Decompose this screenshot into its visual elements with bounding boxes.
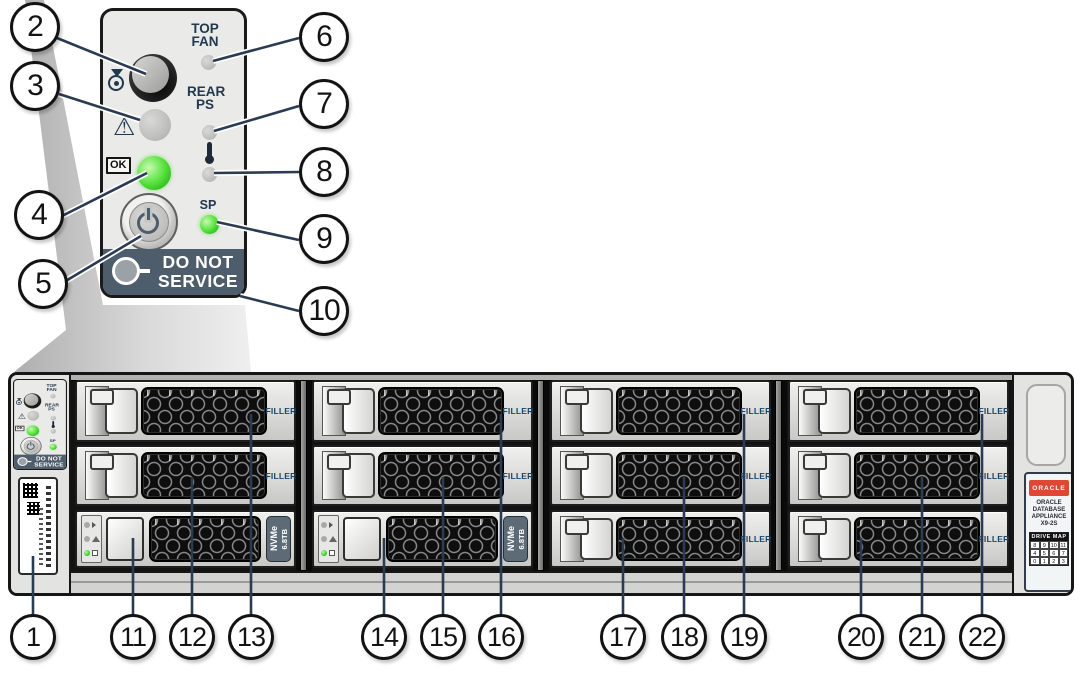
do-not-service-label: DO NOTSERVICE [31,456,67,468]
callout-15: 15 [420,614,466,660]
filler-latch [342,388,375,434]
callout-9: 9 [299,214,349,264]
filler-grille [616,387,742,435]
callout-20: 20 [838,614,884,660]
power-icon [27,442,36,450]
ready-to-remove-icon [92,522,98,528]
serial-number-label [18,477,58,575]
callout-6: 6 [299,12,349,62]
callout-3: 3 [10,61,60,111]
filler-grille [854,452,980,499]
callout-14: 14 [361,614,407,660]
ok-box-icon: OK [15,426,24,431]
locate-button [129,54,177,102]
filler-label: FILLER [268,382,294,440]
filler-latch [105,453,138,498]
filler-label: FILLER [743,382,769,440]
top-fan-led [201,55,216,70]
callout-4: 4 [14,190,64,240]
rear-ps-led [202,125,217,140]
callout-12: 12 [169,614,215,660]
filler-label: FILLER [268,447,294,504]
callout-22: 22 [959,614,1005,660]
rear-ps-label: REARPS [187,85,223,111]
callout-17: 17 [600,614,646,660]
callout-1: 1 [10,614,56,660]
control-panel: ⚠ OK TOPFAN REARPS SP [100,8,247,298]
filler-slot: FILLER [75,380,296,442]
callout-21: 21 [899,614,945,660]
top-fan-label: TOPFAN [45,383,58,391]
ready-to-remove-icon [329,522,335,528]
sp-led [50,444,57,450]
filler-label: FILLER [743,447,769,504]
nvme-capacity-tab: NVMe 6.8TB [503,516,528,562]
filler-grille [141,387,267,435]
drive-fault-icon [329,536,337,542]
filler-latch [580,453,613,498]
top-fan-label: TOPFAN [187,22,223,48]
qr-code-icon [23,483,38,498]
fault-warning-icon: ⚠ [18,412,26,420]
do-not-service-band: DO NOTSERVICE [103,249,244,295]
serial-text-lines [39,505,43,565]
filler-slot: FILLER [550,445,771,506]
filler-latch [580,388,613,434]
callout-7: 7 [299,79,349,129]
fault-led [27,411,39,421]
oracle-product-label: ORACLE ORACLE DATABASE APPLIANCE X9-2S D… [1024,472,1074,592]
product-name: ORACLE DATABASE APPLIANCE X9-2S [1029,500,1069,528]
filler-grille [141,452,267,499]
bay-divider [771,380,787,571]
do-not-service-band: DO NOTSERVICE [14,455,66,469]
temperature-icon [51,421,55,429]
do-not-service-led [17,457,27,466]
filler-latch [580,518,613,560]
filler-slot: FILLER [550,380,771,442]
callout-18: 18 [661,614,707,660]
drive-ok-icon [329,550,335,556]
filler-latch [818,518,851,560]
nvme-capacity-tab: NVMe 6.8TB [266,516,291,562]
filler-latch [105,388,138,434]
nvme-drive-slot: NVMe 6.8TB [312,510,533,568]
drive-ok-icon [92,550,98,556]
filler-latch [818,453,851,498]
oda-front-panel-diagram: ⚠ OK TOPFAN REARPS SP [0,0,1085,675]
bay-divider [533,380,549,571]
filler-slot: FILLER [312,380,533,442]
right-ear-handle-recess [1026,384,1066,466]
filler-slot: FILLER [75,445,296,506]
drive-release-button [343,517,381,561]
callout-5: 5 [18,259,68,309]
sp-led [200,215,219,234]
rear-ps-led [50,416,56,421]
serial-text-lines [46,485,51,567]
temperature-led [202,167,217,182]
bay-divider [296,380,312,571]
callout-16: 16 [478,614,524,660]
drive-fault-icon [92,536,100,542]
chassis-left-ear: ⚠ OK TOPFAN REARPS SP [11,375,71,593]
sp-label: SP [47,439,58,443]
temperature-icon [203,142,215,166]
filler-slot: FILLER [788,380,1009,442]
filler-label: FILLER [981,382,1007,440]
callout-10: 10 [299,286,349,336]
do-not-service-led [112,257,140,285]
temperature-led [50,429,56,434]
drive-led-strip [318,515,339,563]
filler-grille [616,517,742,561]
filler-label: FILLER [981,512,1007,566]
filler-label: FILLER [743,512,769,566]
ok-box-icon: OK [106,157,131,174]
filler-grille [378,387,504,435]
locate-button [24,393,42,408]
do-not-service-label: DO NOTSERVICE [149,253,247,291]
filler-slot: FILLER [788,510,1009,568]
filler-slot: FILLER [550,510,771,568]
server-chassis-front: ⚠ OK TOPFAN REARPS SP [8,372,1074,596]
filler-label: FILLER [981,447,1007,504]
top-fan-led [50,394,56,399]
filler-grille [854,517,980,561]
drive-map-table: DRIVE MAP 891011 4567 0123 [1029,532,1069,566]
ok-led [137,156,171,190]
drive-grille [386,516,498,562]
callout-2: 2 [10,2,60,52]
filler-grille [616,452,742,499]
power-button [120,193,178,251]
filler-slot: FILLER [788,445,1009,506]
control-panel-mini: ⚠ OK TOPFAN REARPS SP [13,379,67,470]
filler-latch [342,453,375,498]
nvme-drive-slot: NVMe 6.8TB [75,510,296,568]
sp-label: SP [193,199,223,212]
filler-grille [854,387,980,435]
callout-8: 8 [299,147,349,197]
locate-icon [106,69,128,95]
filler-label: FILLER [505,447,531,504]
callout-11: 11 [110,614,156,660]
chassis-bottom-strip [71,571,1012,593]
filler-latch [818,388,851,434]
power-button [20,437,41,455]
filler-slot: FILLER [312,445,533,506]
filler-label: FILLER [505,382,531,440]
oracle-logo: ORACLE [1029,480,1069,496]
front-panel-detail: ⚠ OK TOPFAN REARPS SP [100,8,247,298]
locate-icon [15,398,23,406]
drive-led-strip [81,515,102,563]
callout-13: 13 [228,614,274,660]
rear-ps-label: REARPS [45,403,58,411]
fault-warning-icon: ⚠ [113,114,135,139]
power-icon [137,210,161,234]
filler-grille [378,452,504,499]
drive-grille [149,516,261,562]
drive-release-button [106,517,144,561]
callout-19: 19 [721,614,767,660]
fault-led [139,109,171,141]
ok-led [27,425,39,436]
